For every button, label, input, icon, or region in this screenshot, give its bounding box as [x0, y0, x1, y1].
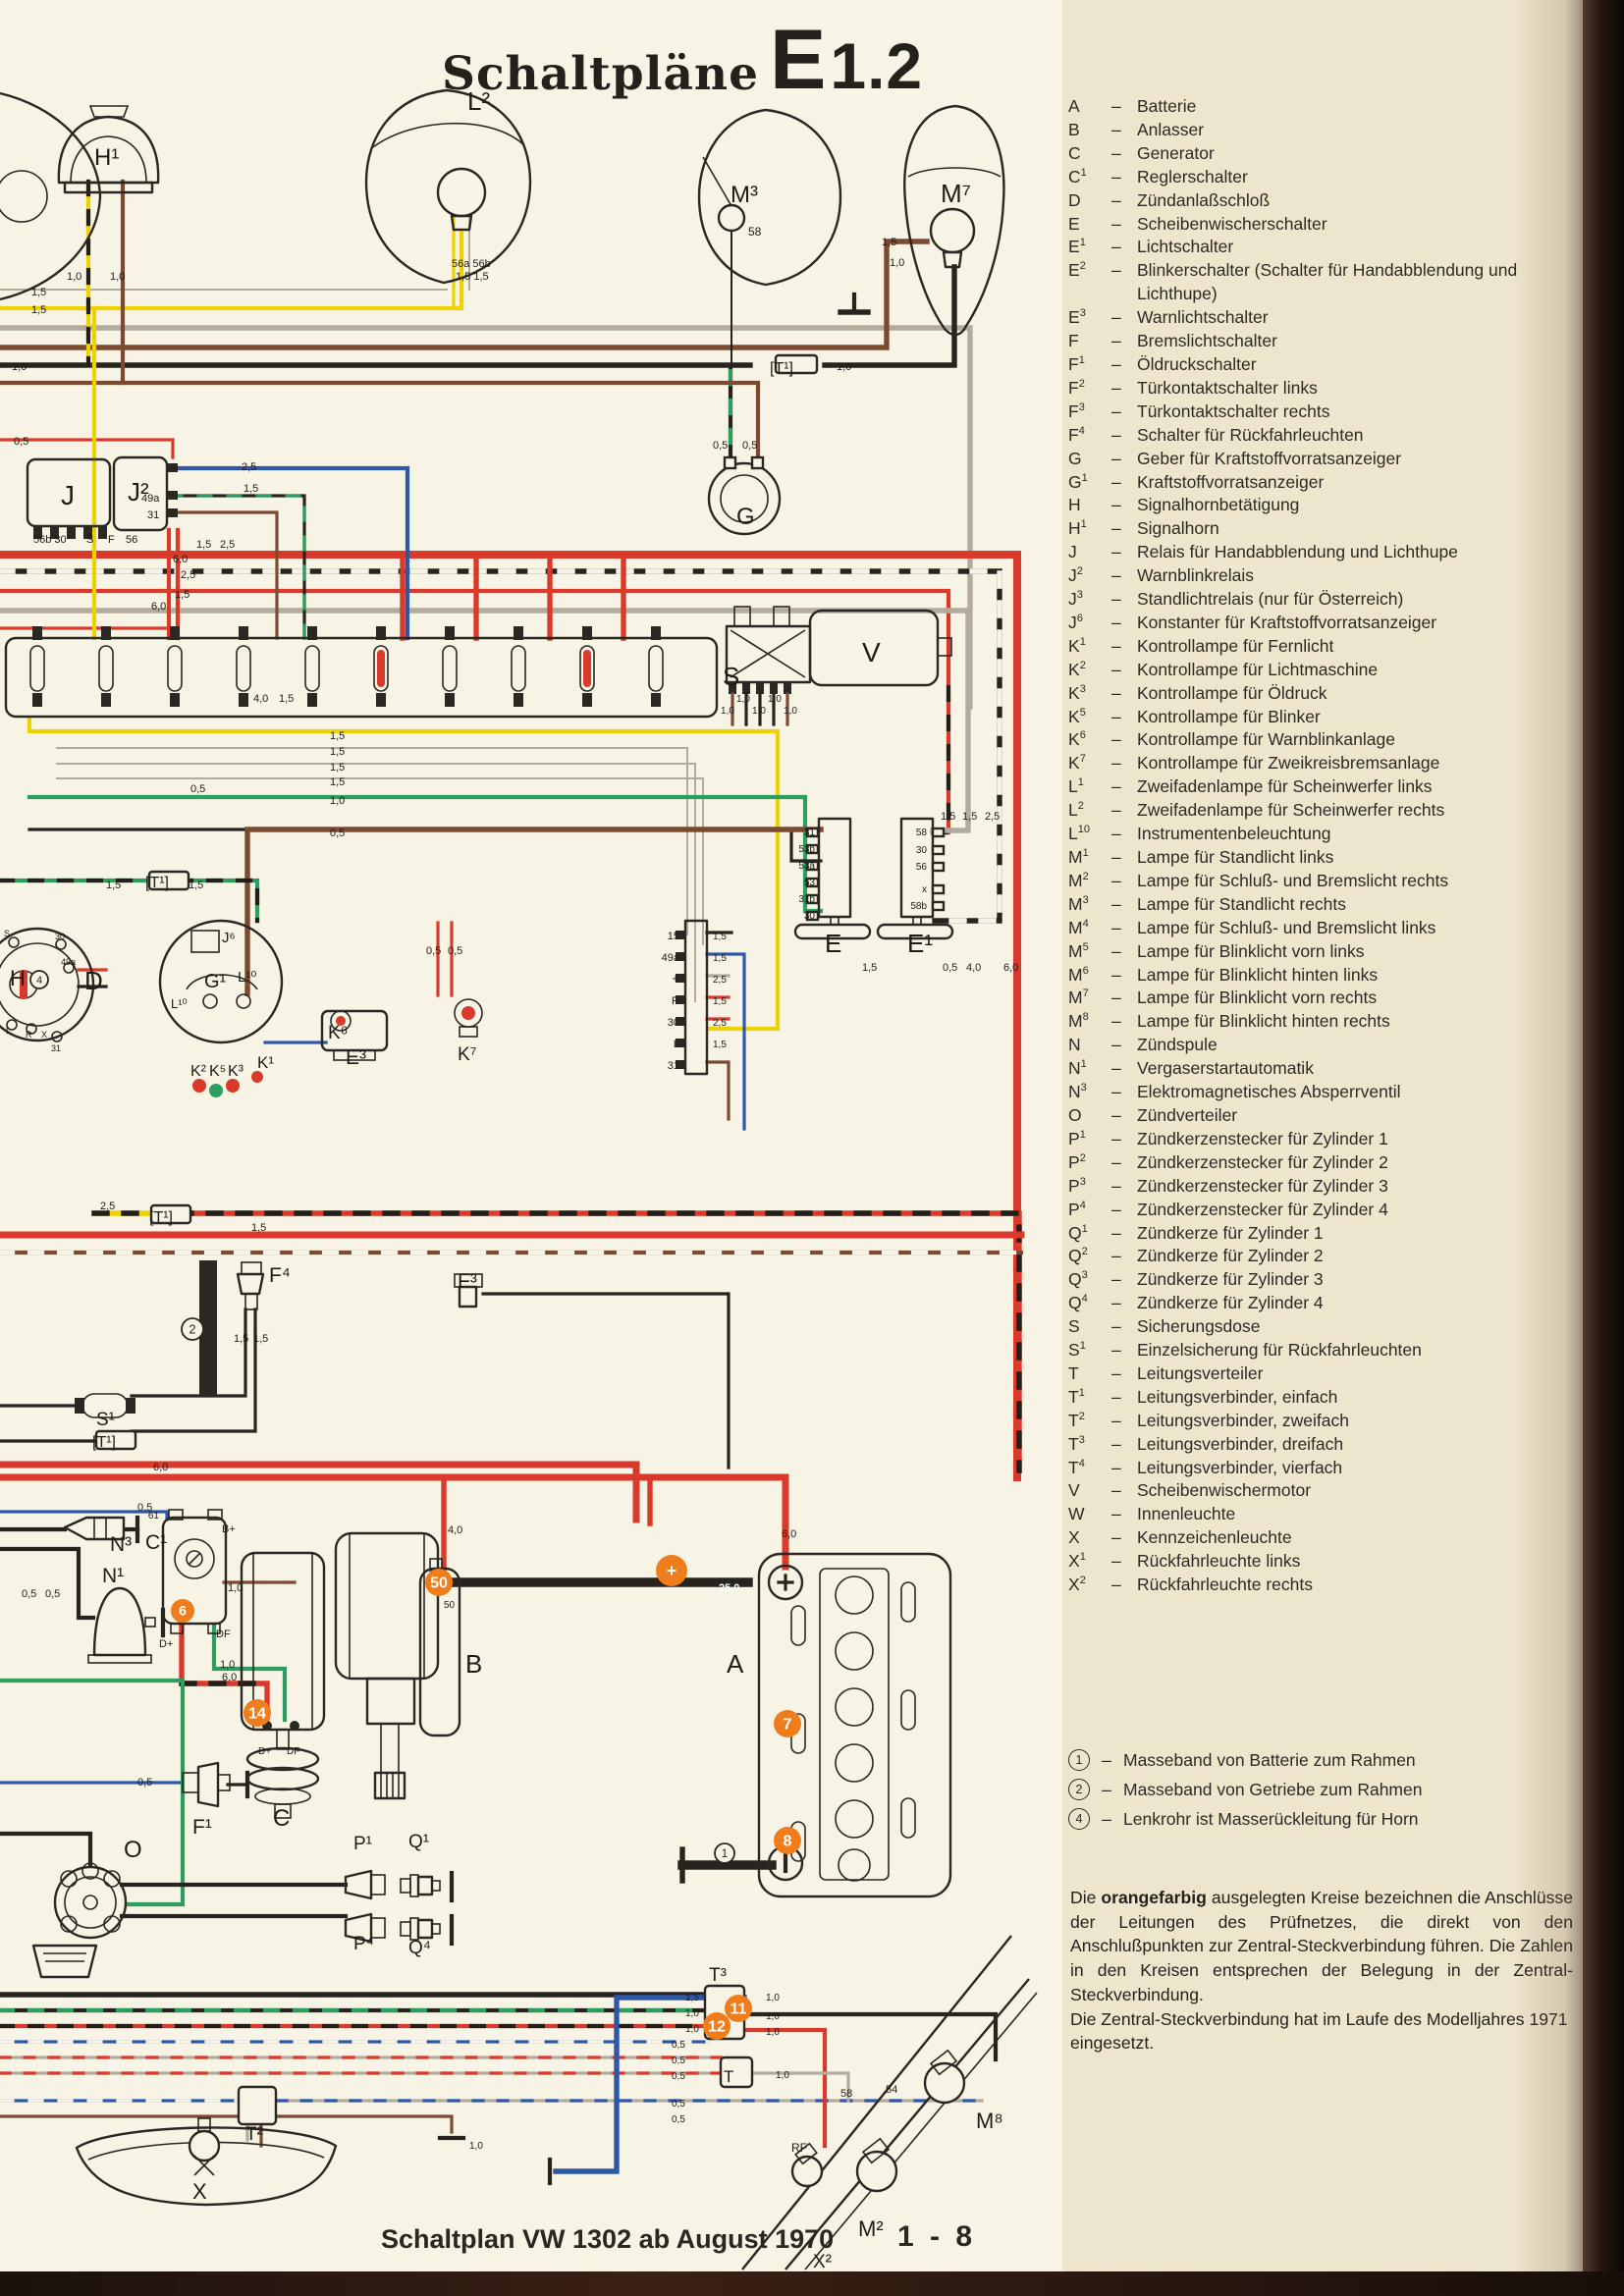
legend-item-label: Lampe für Blinklicht vorn rechts	[1137, 987, 1569, 1010]
legend-item-dash: –	[1111, 1410, 1137, 1433]
legend-item-dash: –	[1111, 823, 1137, 846]
diagram-label: K²	[190, 1063, 207, 1080]
diagram-label: 1,0	[776, 2070, 789, 2081]
diagram-label: 15	[668, 931, 679, 942]
diagram-label: 1,5	[713, 932, 727, 942]
diagram-label: 53b	[798, 844, 815, 855]
legend-item-dash: –	[1111, 799, 1137, 823]
legend-item-label: Kraftstoffvorratsanzeiger	[1137, 471, 1569, 495]
legend-item-label: Scheibenwischerschalter	[1137, 213, 1569, 237]
orange-connector-number: 8	[784, 1833, 792, 1849]
orange-connector-number: +	[667, 1561, 677, 1580]
legend-item-symbol: F1	[1068, 353, 1111, 377]
diagram-label: T²	[245, 2124, 263, 2145]
legend-item-label: Blinkerschalter (Schalter für Handab­ble…	[1137, 259, 1569, 306]
diagram-label: 58b	[910, 901, 927, 912]
legend-item-symbol: J2	[1068, 564, 1111, 588]
legend-item-symbol: G1	[1068, 471, 1111, 495]
diagram-label: J	[61, 480, 75, 510]
legend-item-label: Lampe für Standlicht links	[1137, 846, 1569, 870]
legend-item-symbol: C1	[1068, 166, 1111, 189]
diagram-label: [T¹]	[770, 360, 793, 377]
diagram-label: L	[6, 1026, 11, 1036]
diagram-label: 54	[886, 2084, 897, 2096]
legend-item-label: Türkontaktschalter links	[1137, 377, 1569, 400]
legend-item: M1–Lampe für Standlicht links	[1068, 846, 1569, 870]
ground-note-number: 4	[1068, 1808, 1090, 1830]
diagram-label: 1,5	[244, 483, 258, 495]
legend-item: M6–Lampe für Blinklicht hinten links	[1068, 964, 1569, 988]
legend-item-dash: –	[1111, 659, 1137, 682]
diagram-label: Q⁴	[408, 1938, 431, 1958]
legend-item: S–Sicherungsdose	[1068, 1315, 1569, 1339]
legend-item-symbol: N3	[1068, 1081, 1111, 1104]
diagram-label: 0,5	[137, 1502, 152, 1514]
legend-item-label: Signalhornbetätigung	[1137, 494, 1569, 517]
legend-item-dash: –	[1111, 987, 1137, 1010]
diagram-label: 1,5	[251, 1222, 266, 1234]
legend-item-symbol: M1	[1068, 846, 1111, 870]
diagram-label: 2,5	[713, 1018, 727, 1029]
legend-item-symbol: M3	[1068, 893, 1111, 917]
legend-item-label: Lampe für Schluß- und Bremslicht rechts	[1137, 870, 1569, 893]
legend-item: F1–Öldruckschalter	[1068, 353, 1569, 377]
legend-item: X–Kennzeichenleuchte	[1068, 1526, 1569, 1550]
diagram-label: 1,0	[685, 2024, 699, 2035]
legend-item: M5–Lampe für Blinklicht vorn links	[1068, 940, 1569, 964]
legend-item-label: Leitungsverbinder, zweifach	[1137, 1410, 1569, 1433]
legend-item-label: Leitungsverbinder, einfach	[1137, 1386, 1569, 1410]
legend-item: M8–Lampe für Blinklicht hinten rechts	[1068, 1010, 1569, 1034]
legend-item: Q2–Zündkerze für Zylinder 2	[1068, 1245, 1569, 1268]
legend-item-symbol: J6	[1068, 612, 1111, 635]
info-paragraph-second: Die Zentral-Steckverbindung hat im Laufe…	[1070, 2007, 1573, 2056]
fuse-box-symbol	[6, 626, 717, 717]
diagram-label: 2,5	[100, 1201, 115, 1212]
legend-item-dash: –	[1111, 870, 1137, 893]
diagram-label: R	[26, 1030, 32, 1040]
legend-item-dash: –	[1111, 940, 1137, 964]
legend-item-label: Rückfahrleuchte links	[1137, 1550, 1569, 1574]
diagram-label: V	[862, 637, 881, 667]
legend-item-dash: –	[1111, 1104, 1137, 1128]
legend-item-label: Kontrollampe für Öldruck	[1137, 682, 1569, 706]
diagram-label: 1,0	[766, 2027, 780, 2038]
diagram-label: S	[86, 534, 93, 546]
legend-item-label: Generator	[1137, 142, 1569, 166]
diagram-label: 1,0	[837, 361, 851, 373]
legend-item: Q4–Zündkerze für Zylinder 4	[1068, 1292, 1569, 1315]
legend-item-label: Sicherungsdose	[1137, 1315, 1569, 1339]
legend-item-symbol: S1	[1068, 1339, 1111, 1362]
diagram-label: 56	[126, 534, 137, 546]
legend-item: A–Batterie	[1068, 95, 1569, 119]
legend-item: O–Zündverteiler	[1068, 1104, 1569, 1128]
legend-item: J–Relais für Handabblendung und Lichthup…	[1068, 541, 1569, 564]
diagram-label: 1,5	[941, 811, 955, 823]
diagram-label: RF	[791, 2141, 807, 2155]
legend-item-label: Zündkerzenstecker für Zylinder 2	[1137, 1151, 1569, 1175]
legend-item-symbol: H	[1068, 494, 1111, 517]
legend-item-dash: –	[1111, 306, 1137, 330]
legend-item-symbol: G	[1068, 448, 1111, 471]
diagram-label: 6,0	[173, 554, 188, 565]
diagram-label: 0,5	[943, 962, 957, 974]
legend-item: G1–Kraftstoffvorratsanzeiger	[1068, 471, 1569, 495]
legend-item-dash: –	[1111, 166, 1137, 189]
diagram-label: 0,5	[672, 2056, 685, 2066]
legend-item-symbol: J	[1068, 541, 1111, 564]
diagram-label: H¹	[94, 144, 119, 171]
diagram-label: 1,5	[330, 776, 345, 788]
legend-item-dash: –	[1111, 1292, 1137, 1315]
diagram-label: 4,0	[966, 962, 981, 974]
diagram-label: F⁴	[269, 1264, 291, 1287]
diagram-label: 2,5	[181, 569, 195, 581]
legend-item-symbol: M8	[1068, 1010, 1111, 1034]
diagram-label: 1,5 1,5	[456, 271, 489, 283]
diagram-label: [T¹]	[145, 875, 169, 891]
legend-item-label: Zündanlaßschloß	[1137, 189, 1569, 213]
diagram-label: L¹⁰	[171, 996, 188, 1011]
diagram-label: [T¹]	[92, 1434, 116, 1451]
legend-item-dash: –	[1111, 1034, 1137, 1057]
legend-item: W–Innenleuchte	[1068, 1503, 1569, 1526]
diagram-label: 1,5	[862, 962, 877, 974]
legend-item-label: Lampe für Standlicht rechts	[1137, 893, 1569, 917]
legend-item-dash: –	[1111, 1526, 1137, 1550]
diagram-label: K⁶	[328, 1023, 349, 1043]
legend-item-label: Instrumentenbeleuchtung	[1137, 823, 1569, 846]
legend-item-label: Leitungsverbinder, dreifach	[1137, 1433, 1569, 1457]
diagram-label: x	[922, 884, 927, 895]
diagram-label: 58	[840, 2088, 852, 2100]
legend-item-dash: –	[1111, 424, 1137, 448]
legend-item: K5–Kontrollampe für Blinker	[1068, 706, 1569, 729]
diagram-label: 1,5	[882, 237, 896, 248]
diagram-label: T³	[709, 1965, 727, 1986]
diagram-label: G¹	[204, 971, 227, 992]
legend-item-dash: –	[1111, 1503, 1137, 1526]
diagram-label: 1,0	[768, 694, 782, 705]
legend-item-dash: –	[1111, 259, 1137, 283]
legend-item-symbol: D	[1068, 189, 1111, 213]
legend-item-symbol: A	[1068, 95, 1111, 119]
diagram-label: 6,0	[1003, 962, 1018, 974]
legend-item-dash: –	[1111, 775, 1137, 799]
diagram-label: B	[465, 1649, 482, 1679]
legend-item-symbol: O	[1068, 1104, 1111, 1128]
legend-item: D–Zündanlaßschloß	[1068, 189, 1569, 213]
diagram-label: T	[724, 2067, 733, 2086]
legend-item-symbol: L10	[1068, 823, 1111, 846]
diagram-label: DF	[216, 1629, 231, 1640]
legend-item-label: Konstanter für Kraftstoffvorratsanzeiger	[1137, 612, 1569, 635]
diagram-label: 31	[668, 1060, 679, 1072]
legend-item: K2–Kontrollampe für Lichtmaschine	[1068, 659, 1569, 682]
legend-item-symbol: L1	[1068, 775, 1111, 799]
legend-item-symbol: Q1	[1068, 1222, 1111, 1246]
legend-item-dash: –	[1111, 1199, 1137, 1222]
diagram-label: 1,5	[685, 1993, 699, 2003]
legend-item: H–Signalhornbetätigung	[1068, 494, 1569, 517]
legend-item-label: Leitungsverbinder, vierfach	[1137, 1457, 1569, 1480]
legend-item: C–Generator	[1068, 142, 1569, 166]
legend-item: M7–Lampe für Blinklicht vorn rechts	[1068, 987, 1569, 1010]
legend-item: E–Scheibenwischerschalter	[1068, 213, 1569, 237]
legend-item-label: Bremslichtschalter	[1137, 330, 1569, 353]
orange-connector-badges: 61450+781112	[171, 1555, 801, 2040]
legend-item-label: Zweifadenlampe für Scheinwerfer links	[1137, 775, 1569, 799]
legend-item-dash: –	[1111, 494, 1137, 517]
legend-item-label: Zündspule	[1137, 1034, 1569, 1057]
diagram-label: B+	[222, 1523, 236, 1535]
legend-item-dash: –	[1111, 846, 1137, 870]
diagram-label: 31	[51, 1043, 61, 1053]
diagram-label: 0,5	[713, 440, 728, 452]
legend-item-dash: –	[1111, 588, 1137, 612]
component-legend: A–BatterieB–AnlasserC–GeneratorC1–Regler…	[1068, 95, 1569, 1597]
distributor-symbol	[33, 1863, 126, 1977]
legend-item: N3–Elektromagnetisches Absperrventil	[1068, 1081, 1569, 1104]
legend-item-label: Anlasser	[1137, 119, 1569, 142]
legend-item: L2–Zweifadenlampe für Scheinwerfer recht…	[1068, 799, 1569, 823]
cable-connector-t2	[239, 2087, 276, 2124]
legend-item-dash: –	[1111, 612, 1137, 635]
legend-item: L10–Instrumentenbeleuchtung	[1068, 823, 1569, 846]
diagram-label: O	[124, 1837, 142, 1863]
legend-item-label: Zündkerze für Zylinder 2	[1137, 1245, 1569, 1268]
diagram-label: 0,5	[672, 2099, 685, 2109]
legend-item: T3–Leitungsverbinder, dreifach	[1068, 1433, 1569, 1457]
legend-item: F2–Türkontaktschalter links	[1068, 377, 1569, 400]
legend-item-label: Zündkerzenstecker für Zylinder 4	[1137, 1199, 1569, 1222]
diagram-label: 0,5	[330, 828, 345, 839]
diagram-label: F¹	[192, 1816, 212, 1839]
diagram-label: 31	[804, 828, 816, 838]
parking-light-right-symbol	[699, 110, 840, 285]
circled-ground-refs: 124	[30, 971, 734, 1863]
diagram-label: M⁷	[941, 179, 971, 208]
legend-item-dash: –	[1111, 330, 1137, 353]
legend-item-symbol: E3	[1068, 306, 1111, 330]
footer-page-number: 1 - 8	[897, 2220, 976, 2254]
legend-item-dash: –	[1111, 893, 1137, 917]
legend-item: X2–Rückfahrleuchte rechts	[1068, 1574, 1569, 1597]
legend-item: P1–Zündkerzenstecker für Zylinder 1	[1068, 1128, 1569, 1151]
diagram-label: 1,5	[962, 811, 977, 823]
diagram-label: 1,0	[685, 2008, 699, 2019]
diagram-label: F	[108, 534, 115, 546]
legend-item-dash: –	[1111, 400, 1137, 424]
diagram-label: D+	[258, 1746, 271, 1757]
diagram-label: R	[672, 995, 679, 1007]
legend-item: K7–Kontrollampe für Zweikreisbremsanlage	[1068, 752, 1569, 775]
diagram-label: S¹	[96, 1410, 115, 1430]
legend-item-dash: –	[1111, 541, 1137, 564]
page-fold-shadow	[1512, 0, 1583, 2296]
legend-item-symbol: M2	[1068, 870, 1111, 893]
legend-item: K6–Kontrollampe für Warnblinkanlage	[1068, 728, 1569, 752]
diagram-label: 56b 30	[33, 534, 67, 546]
diagram-label: S	[4, 929, 10, 938]
legend-item-dash: –	[1111, 1245, 1137, 1268]
diagram-label: 0,5	[448, 945, 462, 957]
diagram-label: 1,5	[253, 1333, 268, 1345]
diagram-label: 1,5	[279, 693, 294, 705]
legend-item-symbol: Q4	[1068, 1292, 1111, 1315]
legend-item: F3–Türkontaktschalter rechts	[1068, 400, 1569, 424]
legend-item-label: Elektromagnetisches Absperrventil	[1137, 1081, 1569, 1104]
spark-plug-row	[346, 1871, 452, 1900]
orange-connector-number: 6	[179, 1603, 187, 1619]
legend-item-symbol: S	[1068, 1315, 1111, 1339]
diagram-label: D	[84, 966, 103, 995]
legend-item-symbol: M6	[1068, 964, 1111, 988]
legend-item-dash: –	[1111, 1222, 1137, 1246]
diagram-label: P¹	[353, 1834, 372, 1854]
diagram-label: F³	[458, 1270, 477, 1293]
diagram-label: 30	[668, 1017, 679, 1029]
legend-item-dash: –	[1111, 1386, 1137, 1410]
diagram-label: D+	[159, 1638, 173, 1650]
legend-item-label: Rückfahrleuchte rechts	[1137, 1574, 1569, 1597]
legend-item: T–Leitungsverteiler	[1068, 1362, 1569, 1386]
diagram-label: Q¹	[408, 1832, 429, 1852]
legend-item-dash: –	[1111, 1433, 1137, 1457]
legend-item-symbol: Q2	[1068, 1245, 1111, 1268]
ground-note-dash: –	[1090, 1809, 1123, 1830]
diagram-label: 0,5	[190, 783, 205, 795]
diagram-label: 30	[916, 845, 928, 856]
diagram-label: G	[736, 504, 755, 530]
legend-item-label: Zündkerze für Zylinder 4	[1137, 1292, 1569, 1315]
legend-item-label: Leitungsverteiler	[1137, 1362, 1569, 1386]
legend-item-dash: –	[1111, 1315, 1137, 1339]
legend-item-symbol: K5	[1068, 706, 1111, 729]
diagram-label: L¹⁰	[238, 969, 256, 986]
legend-item: N–Zündspule	[1068, 1034, 1569, 1057]
diagram-label: 1,5	[31, 287, 46, 298]
legend-item: E2–Blinkerschalter (Schalter für Handab­…	[1068, 259, 1569, 306]
legend-item-dash: –	[1111, 682, 1137, 706]
legend-item-dash: –	[1111, 448, 1137, 471]
diagram-label: 53	[804, 878, 816, 888]
diagram-label: 0,5	[742, 440, 757, 452]
legend-item-label: Scheibenwischermotor	[1137, 1479, 1569, 1503]
legend-item-dash: –	[1111, 1057, 1137, 1081]
legend-item-symbol: X2	[1068, 1574, 1111, 1597]
legend-item-symbol: P4	[1068, 1199, 1111, 1222]
diagram-labels: H¹L²M³M⁷GJJ²SDHG¹L¹⁰J⁶L¹⁰K²K⁵K³K¹K⁶K⁷E³E…	[4, 86, 1018, 2272]
legend-item-dash: –	[1111, 95, 1137, 119]
legend-item-dash: –	[1111, 213, 1137, 237]
diagram-label: X	[41, 1030, 47, 1040]
legend-item-dash: –	[1111, 1175, 1137, 1199]
legend-item-symbol: M4	[1068, 917, 1111, 940]
legend-item-label: Lampe für Blinklicht vorn links	[1137, 940, 1569, 964]
diagram-label: K⁵	[209, 1063, 226, 1080]
diagram-label: C¹	[145, 1531, 167, 1554]
legend-item-symbol: K7	[1068, 752, 1111, 775]
diagram-label: 0,5	[672, 2071, 685, 2082]
legend-item-symbol: T4	[1068, 1457, 1111, 1480]
diagram-label: H	[10, 966, 26, 990]
legend-item-label: Innenleuchte	[1137, 1503, 1569, 1526]
diagram-label: 1,0	[330, 795, 345, 807]
legend-item-symbol: N1	[1068, 1057, 1111, 1081]
diagram-label: [T¹]	[149, 1209, 173, 1226]
legend-item-label: Kontrollampe für Zweikreisbremsanlage	[1137, 752, 1569, 775]
legend-item-symbol: E2	[1068, 259, 1111, 283]
diagram-label: 50	[444, 1600, 456, 1611]
front-blinker-right-symbol	[840, 106, 1003, 335]
legend-item-label: Zweifadenlampe für Scheinwerfer rechts	[1137, 799, 1569, 823]
diagram-label: 31	[147, 509, 159, 521]
ground-ref-number: 4	[36, 975, 42, 987]
legend-item-symbol: X	[1068, 1526, 1111, 1550]
diagram-label: 0,5	[22, 1588, 36, 1600]
legend-item: Q1–Zündkerze für Zylinder 1	[1068, 1222, 1569, 1246]
diagram-label: 4,0	[448, 1524, 462, 1536]
legend-item-label: Relais für Handabblendung und Lichthupe	[1137, 541, 1569, 564]
legend-item-dash: –	[1111, 1151, 1137, 1175]
legend-item-label: Einzelsicherung für Rückfahrleuchten	[1137, 1339, 1569, 1362]
wire-runs	[0, 182, 1021, 2183]
orange-connector-number: 11	[731, 2001, 747, 2017]
legend-item-symbol: M7	[1068, 987, 1111, 1010]
diagram-label: L	[674, 1039, 679, 1050]
legend-item-dash: –	[1111, 1010, 1137, 1034]
orange-connector-number: 7	[784, 1716, 792, 1733]
legend-item-label: Schalter für Rückfahrleuchten	[1137, 424, 1569, 448]
legend-item-dash: –	[1111, 635, 1137, 659]
diagram-label: 1,5	[713, 1040, 727, 1050]
legend-item-label: Zündkerze für Zylinder 1	[1137, 1222, 1569, 1246]
diagram-label: 1,0	[752, 706, 766, 717]
legend-item-symbol: P1	[1068, 1128, 1111, 1151]
diagram-label: M²	[858, 2216, 884, 2241]
diagram-label: X	[192, 2179, 207, 2204]
legend-item-label: Zündkerzenstecker für Zylinder 3	[1137, 1175, 1569, 1199]
legend-item: C1–Reglerschalter	[1068, 166, 1569, 189]
diagram-label: 1,0	[766, 1993, 780, 2003]
legend-item-symbol: K6	[1068, 728, 1111, 752]
diagram-label: 1,5	[713, 996, 727, 1007]
diagram-label: 1,5	[330, 762, 345, 774]
diagram-label: S	[723, 662, 739, 691]
legend-item-symbol: E	[1068, 213, 1111, 237]
rear-blinker-right-bulb	[925, 2063, 964, 2103]
diagram-label: 25,0	[719, 1582, 739, 1594]
legend-item-dash: –	[1111, 752, 1137, 775]
diagram-label: E³	[346, 1046, 366, 1069]
legend-item-symbol: K1	[1068, 635, 1111, 659]
diagram-label: 1,0	[110, 271, 125, 283]
ground-note: 2–Masseband von Getriebe zum Rahmen	[1068, 1779, 1569, 1800]
wiring-diagram: H¹L²M³M⁷GJJ²SDHG¹L¹⁰J⁶L¹⁰K²K⁵K³K¹K⁶K⁷E³E…	[0, 0, 1060, 2273]
legend-item-symbol: T2	[1068, 1410, 1111, 1433]
diagram-label: 30	[55, 932, 65, 941]
diagram-label: 1,5	[31, 304, 46, 316]
legend-item-symbol: V	[1068, 1479, 1111, 1503]
legend-item-symbol: M5	[1068, 940, 1111, 964]
right-headlight-symbol	[366, 90, 530, 283]
legend-item-label: Geber für Kraftstoffvorratsanzeiger	[1137, 448, 1569, 471]
legend-item-dash: –	[1111, 964, 1137, 988]
legend-item-symbol: T	[1068, 1362, 1111, 1386]
legend-item-label: Standlichtrelais (nur für Österreich)	[1137, 588, 1569, 612]
